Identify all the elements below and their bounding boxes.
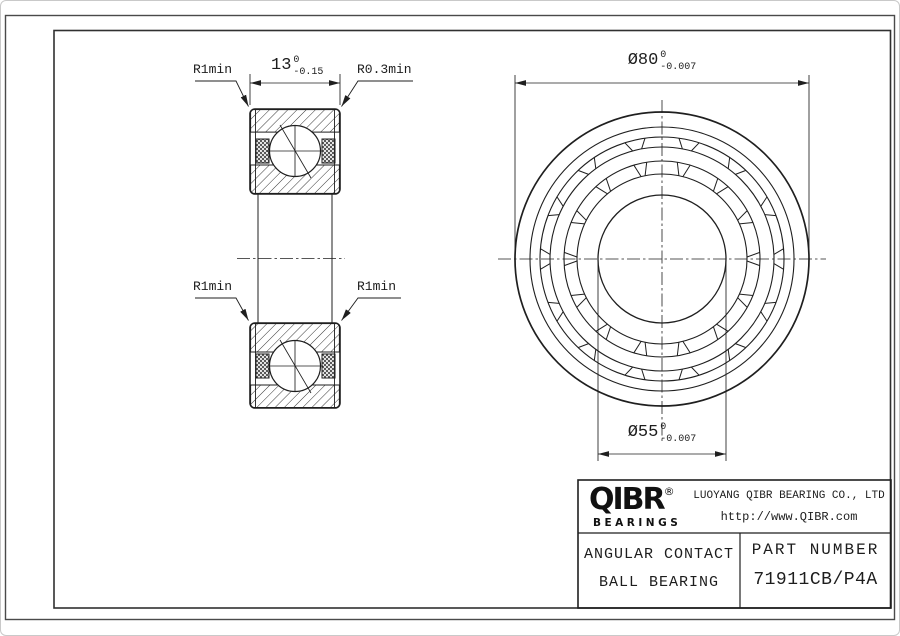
logo-text: QIBR [589,482,664,517]
front-view [498,75,826,461]
diameter-symbol: Ø [628,52,638,69]
diameter-symbol: Ø [628,424,638,441]
dim-od-tolerance: 0 -0.007 [660,50,696,73]
label-r1min-mid-right: R1min [357,280,396,293]
part-number-value: 71911CB/P4A [740,571,891,589]
product-type-line2: BALL BEARING [578,575,740,590]
tolerance-lower: -0.15 [293,67,323,79]
leader-r1min-mid-right [342,298,402,321]
tolerance-lower: -0.007 [660,62,696,74]
front-view-centerlines [498,100,826,443]
dim-width-value: 13 [271,57,291,74]
engineering-drawing-sheet: R1min 13 0 -0.15 R0.3min R1min R1min Ø80… [0,0,900,636]
dim-bore-value: 55 [638,424,658,441]
part-number-label: PART NUMBER [740,542,891,558]
width-dimension [250,74,340,105]
tolerance-upper: 0 [660,50,696,62]
registered-trademark-symbol: ® [664,485,675,498]
leader-r0-3min-top-right [342,81,414,107]
cage-section-right [322,139,335,163]
dim-bore-diameter: Ø55 0 -0.007 [628,424,697,445]
dim-bore-tolerance: 0 -0.007 [660,422,696,445]
label-r0-3min-top-right: R0.3min [357,63,412,76]
label-r1min-mid-left: R1min [193,280,232,293]
tolerance-upper: 0 [293,55,323,67]
cross-section-view [195,74,413,408]
section-top-half [250,109,340,194]
leader-r1min-top-left [195,81,249,107]
company-website: http://www.QIBR.com [691,511,887,523]
section-bottom-half [250,323,340,408]
product-type-line1: ANGULAR CONTACT [578,547,740,562]
label-r1min-top-left: R1min [193,63,232,76]
dim-outer-diameter: Ø80 0 -0.007 [628,52,697,73]
dim-width-tolerance: 0 -0.15 [293,55,323,78]
cage-section-right [322,354,335,378]
leader-r1min-mid-left [195,298,249,321]
company-name: LUOYANG QIBR BEARING CO., LTD [691,491,887,502]
tolerance-upper: 0 [660,422,696,434]
sheet-outer-border [6,16,895,620]
tolerance-lower: -0.007 [660,434,696,446]
dim-od-value: 80 [638,52,658,69]
dim-width: 13 0 -0.15 [271,57,323,78]
